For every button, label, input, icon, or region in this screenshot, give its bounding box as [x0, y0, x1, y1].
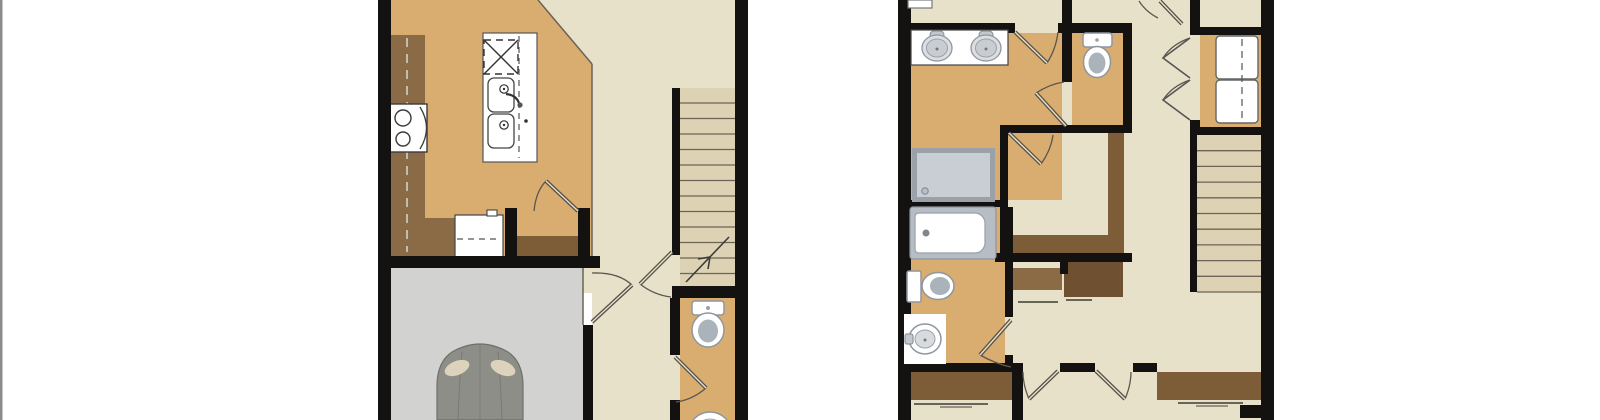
- wall-segment: [583, 325, 593, 420]
- floorplan-lower: [378, 0, 748, 420]
- walkin-shelf-bottom: [1008, 235, 1124, 253]
- car-icon: [437, 344, 523, 420]
- wall-segment: [505, 208, 517, 260]
- wall-segment: [672, 286, 748, 298]
- faucet-icon: [905, 334, 913, 344]
- wall-segment: [578, 208, 590, 260]
- wall-segment: [1058, 23, 1132, 33]
- wall-segment: [1005, 207, 1013, 317]
- wall-segment: [670, 400, 680, 420]
- refrigerator-icon: [455, 210, 503, 260]
- floor-plan-drawing: [0, 0, 1600, 420]
- walkin-shelf-right: [1108, 133, 1124, 235]
- wc-toilet-icon: [1083, 33, 1112, 78]
- cropped-fixture-top-left: [908, 0, 932, 8]
- dryer-icon: [1216, 80, 1258, 123]
- wall-segment: [898, 363, 1023, 372]
- shower-icon: [912, 148, 995, 202]
- floorplan-upper: [898, 0, 1274, 420]
- wall-segment: [1060, 262, 1068, 274]
- pantry-shelf: [517, 236, 578, 256]
- double-vanity: [911, 30, 1008, 65]
- sheet-edge-line: [0, 0, 3, 420]
- wall-segment: [1133, 363, 1157, 372]
- wall-segment: [735, 0, 748, 420]
- hallbath-toilet-icon: [907, 271, 954, 302]
- bathtub-icon: [910, 207, 996, 259]
- staircase-lower: [680, 88, 735, 286]
- wall-segment: [670, 298, 680, 355]
- wall-segment: [1062, 33, 1072, 82]
- wall-segment: [1123, 23, 1132, 133]
- wall-segment: [1062, 0, 1072, 23]
- staircase-upper: [1197, 135, 1261, 292]
- wall-segment: [672, 88, 680, 255]
- wall-segment: [1000, 125, 1132, 133]
- wall-segment: [1190, 135, 1197, 292]
- hallbath-pedestal-sink-icon: [904, 314, 946, 364]
- hall-closet-shelf-light: [1012, 268, 1062, 290]
- wall-segment: [1240, 405, 1262, 418]
- range-icon: [388, 104, 427, 152]
- washer-icon: [1216, 36, 1258, 79]
- wall-segment: [378, 256, 600, 268]
- powder-toilet-icon: [692, 301, 724, 347]
- bedroom-right-closet-shelf: [1157, 372, 1261, 400]
- wall-segment: [378, 0, 391, 420]
- washer-dryer-stack: [1216, 36, 1258, 123]
- hall-closet-shelf-dark: [1064, 262, 1123, 297]
- wall-segment: [1261, 0, 1274, 420]
- bedroom-left-closet-shelf: [911, 372, 1012, 400]
- floor-plan-sheet: [0, 0, 1600, 420]
- wall-segment: [1190, 27, 1262, 35]
- wall-segment: [1190, 127, 1262, 135]
- wall-segment: [1012, 372, 1023, 420]
- kitchen-island: [483, 33, 537, 162]
- wall-segment: [1060, 363, 1095, 372]
- wall-segment: [995, 253, 1132, 262]
